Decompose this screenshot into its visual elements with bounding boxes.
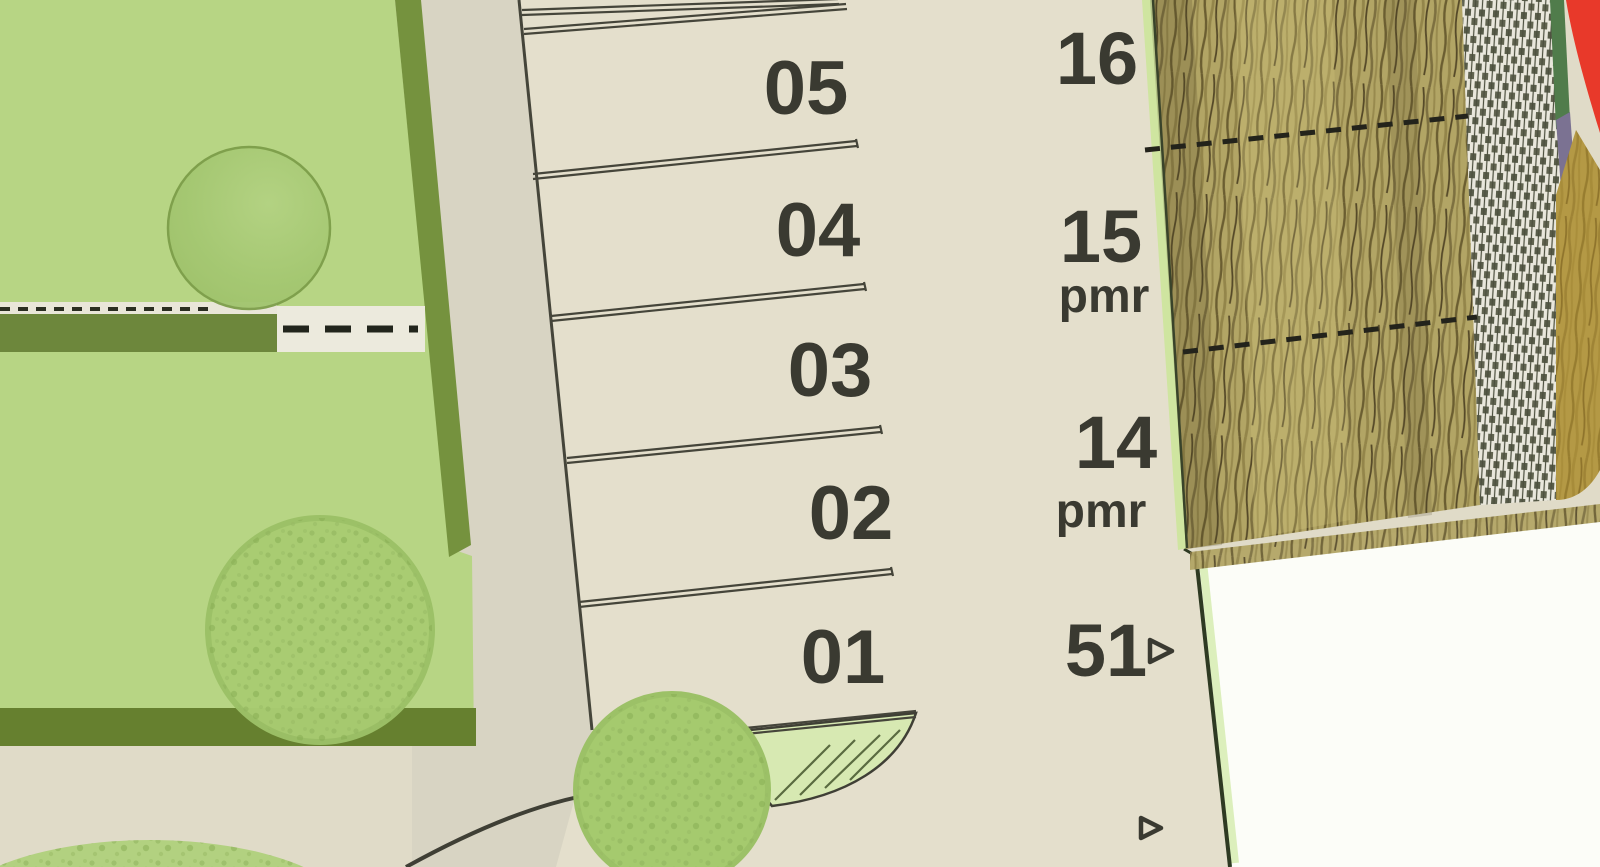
stall-number: 01 [801,615,886,700]
site-plan: 05 04 03 02 01 16 15 pmr 14 pmr 51 [0,0,1600,867]
stall-number: 03 [788,328,873,413]
tree-icon [576,694,768,867]
stall-number: 05 [764,46,849,131]
stall-number: 02 [809,471,894,556]
hedge-top [0,314,277,352]
deck-area [1142,0,1600,570]
tree-icon [208,518,432,742]
stall-number: 15 [1060,195,1142,278]
hedge-bottom [0,708,476,746]
pmr-label: pmr [1056,485,1147,538]
stall-number: 04 [776,188,861,273]
stall-number: 51 [1065,609,1147,692]
pmr-label: pmr [1059,270,1150,323]
stall-number: 16 [1056,17,1138,100]
tree-icon [168,147,330,309]
stall-number: 14 [1075,401,1157,484]
site-plan-canvas: 05 04 03 02 01 16 15 pmr 14 pmr 51 [0,0,1600,867]
